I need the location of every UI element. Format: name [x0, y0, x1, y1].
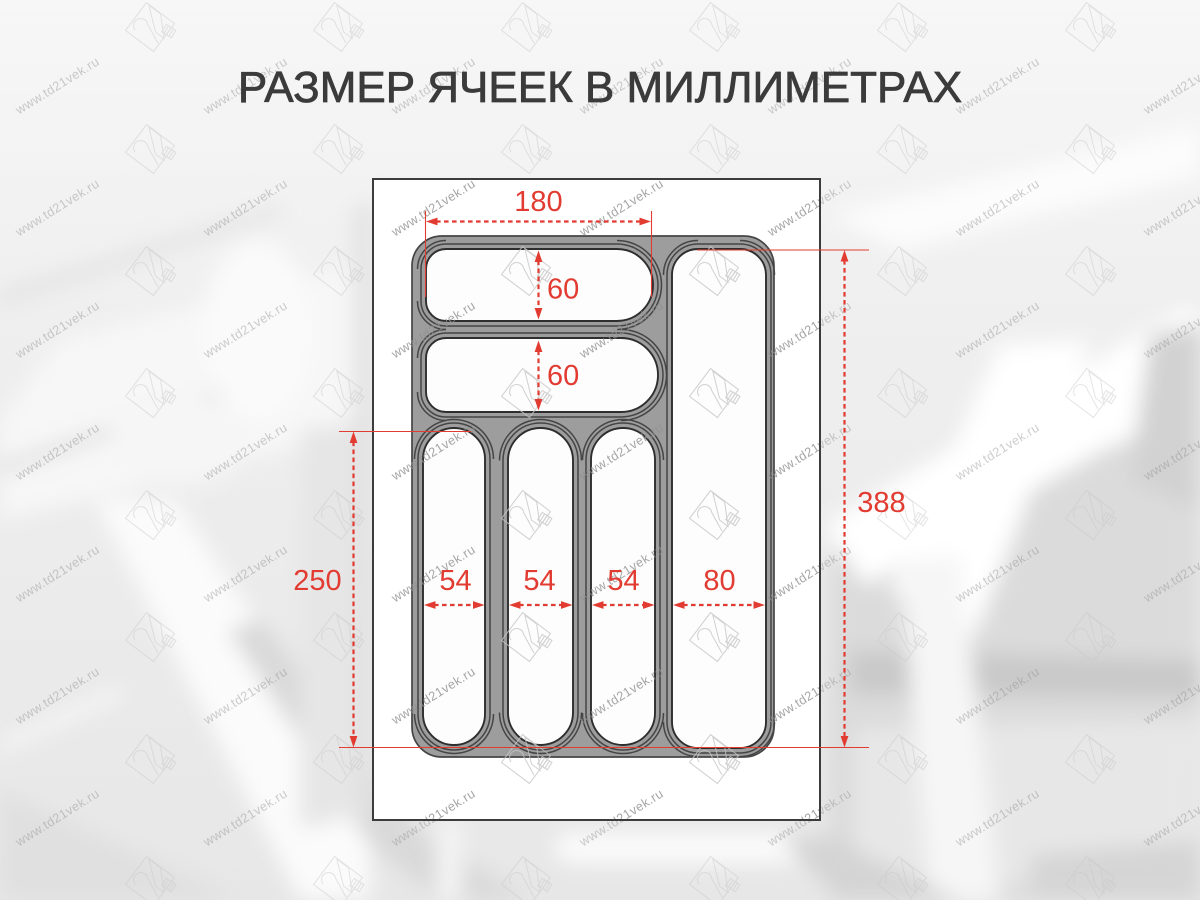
svg-text:54: 54 [607, 565, 639, 597]
svg-text:60: 60 [547, 274, 579, 306]
svg-text:54: 54 [523, 565, 555, 597]
svg-text:60: 60 [547, 360, 579, 392]
svg-text:180: 180 [514, 186, 562, 218]
svg-text:80: 80 [703, 565, 735, 597]
svg-text:54: 54 [439, 565, 471, 597]
svg-text:388: 388 [857, 487, 905, 519]
svg-text:250: 250 [293, 565, 341, 597]
